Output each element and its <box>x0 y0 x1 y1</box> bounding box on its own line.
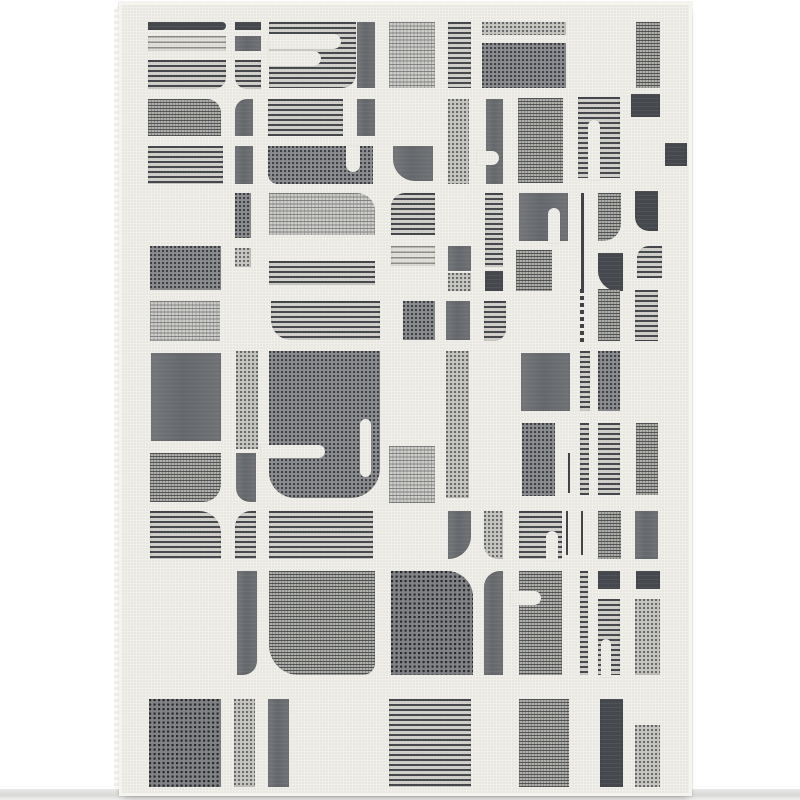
pattern-block <box>448 511 471 559</box>
pattern-block <box>580 571 588 675</box>
pattern-block <box>403 301 435 340</box>
pattern-block <box>235 22 261 30</box>
pattern-block <box>600 699 623 787</box>
pattern-block <box>235 146 253 184</box>
pattern-block <box>389 446 435 503</box>
pattern-block <box>568 453 570 493</box>
pattern-block <box>448 246 471 271</box>
pattern-block <box>448 22 471 88</box>
pattern-slot <box>548 208 560 243</box>
pattern-block <box>519 193 568 241</box>
pattern-block <box>391 246 435 266</box>
pattern-block <box>269 511 373 559</box>
pattern-slot <box>511 591 541 605</box>
pattern-slot <box>360 419 371 477</box>
pattern-block <box>235 511 256 559</box>
pattern-block <box>598 423 620 495</box>
pattern-block <box>151 353 221 441</box>
pattern-block <box>598 511 621 559</box>
pattern-block <box>665 143 687 166</box>
pattern-block <box>484 571 503 675</box>
pattern-block <box>482 22 566 35</box>
pattern-block <box>519 699 569 787</box>
pattern-block <box>357 99 375 136</box>
pattern-slot <box>477 151 499 165</box>
pattern-block <box>389 699 471 787</box>
pattern-block <box>391 193 435 235</box>
pattern-block <box>485 271 503 291</box>
pattern-block <box>580 289 584 343</box>
pattern-block <box>581 193 584 293</box>
pattern-block <box>236 453 256 502</box>
pattern-block <box>237 571 257 675</box>
pattern-block <box>635 191 658 231</box>
pattern-block <box>598 193 621 241</box>
pattern-block <box>521 353 570 411</box>
pattern-block <box>150 246 221 290</box>
pattern-block <box>235 60 261 89</box>
pattern-block <box>357 22 375 88</box>
pattern-block <box>484 511 503 559</box>
pattern-slot <box>261 445 325 458</box>
pattern-block <box>269 571 375 675</box>
pattern-slot <box>546 531 558 561</box>
pattern-block <box>519 571 562 675</box>
pattern-block <box>636 423 658 495</box>
pattern-block <box>446 301 470 340</box>
pattern-block <box>635 599 660 675</box>
pattern-block <box>235 99 253 136</box>
pattern-block <box>235 193 251 238</box>
pattern-block <box>235 248 251 267</box>
rug-product-photo <box>0 0 800 800</box>
pattern-block <box>148 60 226 89</box>
pattern-block <box>598 253 623 291</box>
pattern-block <box>598 571 620 589</box>
pattern-block <box>148 22 226 30</box>
pattern-block <box>635 290 658 341</box>
pattern-block <box>149 699 221 787</box>
pattern-block <box>268 99 343 136</box>
pattern-block <box>518 98 563 183</box>
pattern-block <box>446 351 469 498</box>
pattern-slot <box>601 639 611 677</box>
pattern-block <box>637 246 662 278</box>
pattern-slot <box>269 34 341 49</box>
pattern-block <box>482 43 566 88</box>
pattern-block <box>234 699 255 787</box>
pattern-block <box>566 511 568 555</box>
pattern-block <box>635 725 660 787</box>
pattern-block <box>635 511 658 559</box>
pattern-block <box>598 351 620 411</box>
pattern-block <box>580 423 589 495</box>
pattern-block <box>448 273 471 291</box>
pattern-block <box>389 22 435 88</box>
pattern-block <box>235 36 261 51</box>
pattern-block <box>150 301 220 341</box>
pattern-block <box>150 453 221 502</box>
pattern-block <box>631 94 660 117</box>
pattern-block <box>522 423 555 496</box>
pattern-block <box>148 36 226 51</box>
pattern-block <box>271 301 380 340</box>
pattern-block <box>150 511 221 559</box>
pattern-block <box>268 699 289 787</box>
pattern-block <box>148 146 223 184</box>
pattern-block <box>269 261 375 285</box>
pattern-slot <box>588 120 600 180</box>
pattern-block <box>516 250 552 291</box>
pattern-block <box>581 511 583 555</box>
pattern-block <box>391 571 473 675</box>
pattern-slot <box>346 146 360 172</box>
pattern-block <box>448 99 469 184</box>
pattern-block <box>393 146 433 181</box>
pattern-slot <box>269 51 321 66</box>
pattern-block <box>269 193 375 235</box>
pattern-block <box>485 193 503 267</box>
page: { "image": { "type": "product-photo", "s… <box>0 0 800 800</box>
pattern-block <box>486 99 503 184</box>
rug-canvas <box>119 2 692 796</box>
pattern-block <box>636 22 660 88</box>
pattern-block <box>484 301 506 341</box>
pattern-block <box>236 351 258 449</box>
pattern-block <box>636 571 660 589</box>
pattern-block <box>580 351 590 411</box>
pattern-block <box>598 289 620 341</box>
pattern-block <box>148 99 221 136</box>
